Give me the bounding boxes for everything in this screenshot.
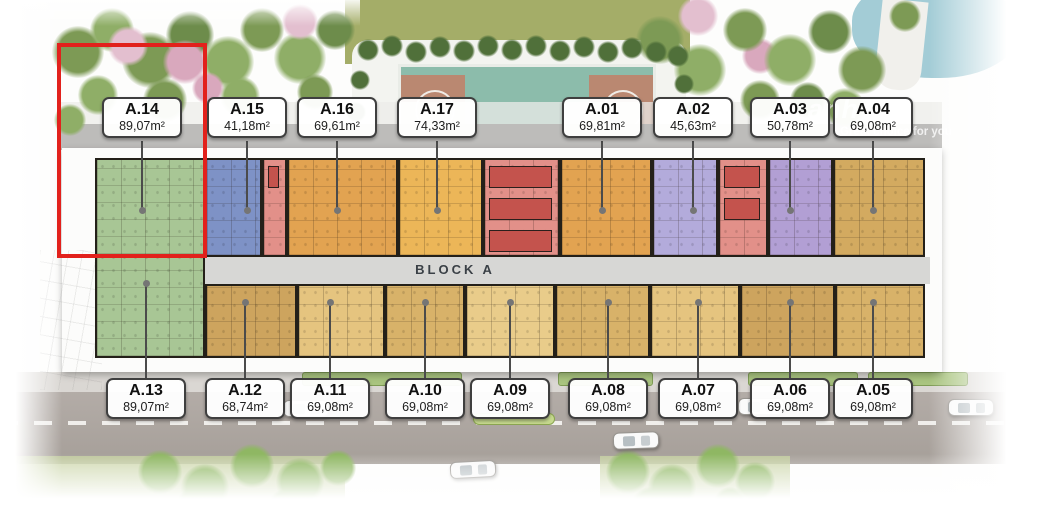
elevator-shaft (489, 230, 552, 252)
floor-plan-texture (207, 286, 295, 356)
floor-plan-texture (207, 160, 260, 255)
unit-id: A.01 (564, 101, 640, 119)
car (450, 460, 497, 479)
floor-plan-texture (742, 286, 833, 356)
leader-dot-a02 (690, 207, 697, 214)
unit-label-a05[interactable]: A.0569,08m² (833, 378, 913, 419)
stair-core (483, 158, 560, 257)
leader-dot-a06 (787, 299, 794, 306)
palm-tree (230, 444, 274, 488)
tree (357, 39, 379, 61)
unit-id: A.12 (207, 382, 283, 400)
tree (429, 36, 451, 58)
unit-id: A.13 (108, 382, 184, 400)
tree (645, 41, 667, 63)
unit-a06[interactable] (740, 284, 835, 358)
leader-line-a01 (601, 141, 603, 210)
leader-line-a05 (872, 302, 874, 378)
car (948, 399, 994, 416)
unit-label-a17[interactable]: A.1774,33m² (397, 97, 477, 138)
car-rear-window (976, 403, 985, 413)
unit-area: 69,08m² (752, 400, 828, 414)
floor-plan-texture (652, 286, 738, 356)
corridor: BLOCK A (205, 257, 930, 284)
tree (808, 10, 852, 54)
unit-label-a07[interactable]: A.0769,08m² (658, 378, 738, 419)
tree (501, 39, 523, 61)
elevator-shaft (268, 166, 279, 188)
elevator-shaft (724, 166, 760, 188)
tree (678, 0, 718, 36)
floor-plan-texture (562, 160, 650, 255)
leader-line-a04 (872, 141, 874, 210)
tree (723, 8, 767, 52)
car-windshield (460, 465, 473, 476)
stair-core (262, 158, 287, 257)
unit-id: A.10 (387, 382, 463, 400)
leader-dot-a12 (242, 299, 249, 306)
leader-dot-a04 (870, 207, 877, 214)
unit-a17[interactable] (398, 158, 483, 257)
unit-label-a03[interactable]: A.0350,78m² (750, 97, 830, 138)
unit-a01[interactable] (560, 158, 652, 257)
palm-tree (696, 444, 740, 488)
unit-label-a04[interactable]: A.0469,08m² (833, 97, 913, 138)
elevator-shaft (489, 166, 552, 188)
leader-line-a11 (329, 302, 331, 378)
block-a-label: BLOCK A (380, 262, 530, 277)
palm-tree (632, 487, 668, 516)
leader-dot-a09 (507, 299, 514, 306)
unit-id: A.16 (299, 101, 375, 119)
floor-plan-texture (557, 286, 648, 356)
unit-a15[interactable] (205, 158, 262, 257)
unit-area: 74,33m² (399, 119, 475, 133)
unit-a16[interactable] (287, 158, 398, 257)
leader-line-a02 (692, 141, 694, 210)
car-windshield (958, 403, 970, 413)
unit-a07[interactable] (650, 284, 740, 358)
tree (525, 35, 547, 57)
unit-area: 69,08m² (387, 400, 463, 414)
unit-a04[interactable] (833, 158, 925, 257)
tree (549, 40, 571, 62)
unit-id: A.04 (835, 101, 911, 119)
tree (350, 70, 370, 90)
floor-plan-texture (654, 160, 716, 255)
palm-tree (320, 450, 356, 486)
unit-id: A.05 (835, 382, 911, 400)
paving (40, 250, 102, 390)
unit-area: 69,81m² (564, 119, 640, 133)
tree (667, 45, 689, 67)
unit-area: 69,08m² (660, 400, 736, 414)
car (613, 431, 660, 450)
floor-plan-texture (299, 286, 383, 356)
leader-line-a03 (789, 141, 791, 210)
unit-label-a16[interactable]: A.1669,61m² (297, 97, 377, 138)
palm-tree (177, 487, 213, 516)
car-rear-window (641, 435, 650, 445)
leader-dot-a05 (870, 299, 877, 306)
unit-id: A.15 (209, 101, 285, 119)
tree (597, 41, 619, 63)
leader-line-a17 (436, 141, 438, 210)
unit-a03[interactable] (768, 158, 833, 257)
floor-plan-texture (835, 160, 923, 255)
tree (453, 40, 475, 62)
leader-dot-a13 (143, 280, 150, 287)
leader-dot-a10 (422, 299, 429, 306)
unit-a08[interactable] (555, 284, 650, 358)
unit-label-a11[interactable]: A.1169,08m² (290, 378, 370, 419)
unit-label-a06[interactable]: A.0669,08m² (750, 378, 830, 419)
elevator-shaft (724, 198, 760, 220)
unit-label-a10[interactable]: A.1069,08m² (385, 378, 465, 419)
unit-id: A.17 (399, 101, 475, 119)
tree (621, 37, 643, 59)
unit-label-a08[interactable]: A.0869,08m² (568, 378, 648, 419)
leader-line-a06 (789, 302, 791, 378)
tree (674, 74, 694, 94)
floor-plan-texture (289, 160, 396, 255)
unit-a12[interactable] (205, 284, 297, 358)
unit-area: 69,08m² (472, 400, 548, 414)
floor-plan-texture (837, 286, 923, 356)
unit-label-a12[interactable]: A.1268,74m² (205, 378, 285, 419)
tree (889, 0, 921, 32)
tree (573, 36, 595, 58)
leader-line-a12 (244, 302, 246, 378)
tree (477, 35, 499, 57)
unit-area: 89,07m² (108, 400, 184, 414)
floor-plan-texture (770, 160, 831, 255)
leader-dot-a17 (434, 207, 441, 214)
leader-dot-a08 (605, 299, 612, 306)
unit-area: 69,08m² (570, 400, 646, 414)
site-plan: BLOCK A anh Great choice for you A.1489,… (0, 0, 1054, 516)
tree (282, 4, 318, 40)
leader-dot-a11 (327, 299, 334, 306)
unit-id: A.08 (570, 382, 646, 400)
unit-area: 41,18m² (209, 119, 285, 133)
leader-line-a10 (424, 302, 426, 378)
leader-line-a09 (509, 302, 511, 378)
tree (764, 34, 816, 86)
unit-area: 69,08m² (835, 119, 911, 133)
tree (405, 41, 427, 63)
unit-id: A.03 (752, 101, 828, 119)
car-rear-window (478, 464, 488, 474)
unit-area: 69,61m² (299, 119, 375, 133)
leader-line-a13 (145, 283, 147, 378)
highlight-box-a14 (57, 43, 207, 258)
unit-label-a02[interactable]: A.0245,63m² (653, 97, 733, 138)
leader-dot-a01 (599, 207, 606, 214)
unit-area: 69,08m² (835, 400, 911, 414)
unit-id: A.07 (660, 382, 736, 400)
tree (838, 46, 886, 94)
unit-label-a13[interactable]: A.1389,07m² (106, 378, 186, 419)
unit-id: A.06 (752, 382, 828, 400)
car-windshield (623, 436, 635, 446)
unit-area: 45,63m² (655, 119, 731, 133)
unit-label-a01[interactable]: A.0169,81m² (562, 97, 642, 138)
leader-dot-a03 (787, 207, 794, 214)
unit-a05[interactable] (835, 284, 925, 358)
unit-label-a09[interactable]: A.0969,08m² (470, 378, 550, 419)
stair-core (718, 158, 768, 257)
unit-area: 68,74m² (207, 400, 283, 414)
leader-dot-a07 (695, 299, 702, 306)
palm-tree (269, 489, 301, 516)
leader-dot-a15 (244, 207, 251, 214)
tree (381, 35, 403, 57)
unit-area: 69,08m² (292, 400, 368, 414)
leader-dot-a16 (334, 207, 341, 214)
palm-tree (138, 450, 182, 494)
floor-plan-texture (400, 160, 481, 255)
leader-line-a15 (246, 141, 248, 210)
leader-line-a08 (607, 302, 609, 378)
unit-label-a15[interactable]: A.1541,18m² (207, 97, 287, 138)
tree (315, 10, 355, 50)
elevator-shaft (489, 198, 552, 220)
unit-a11[interactable] (297, 284, 385, 358)
palm-tree (714, 487, 746, 516)
unit-id: A.11 (292, 382, 368, 400)
unit-a02[interactable] (652, 158, 718, 257)
leader-line-a07 (697, 302, 699, 378)
unit-id: A.09 (472, 382, 548, 400)
unit-area: 50,78m² (752, 119, 828, 133)
unit-id: A.02 (655, 101, 731, 119)
leader-line-a16 (336, 141, 338, 210)
